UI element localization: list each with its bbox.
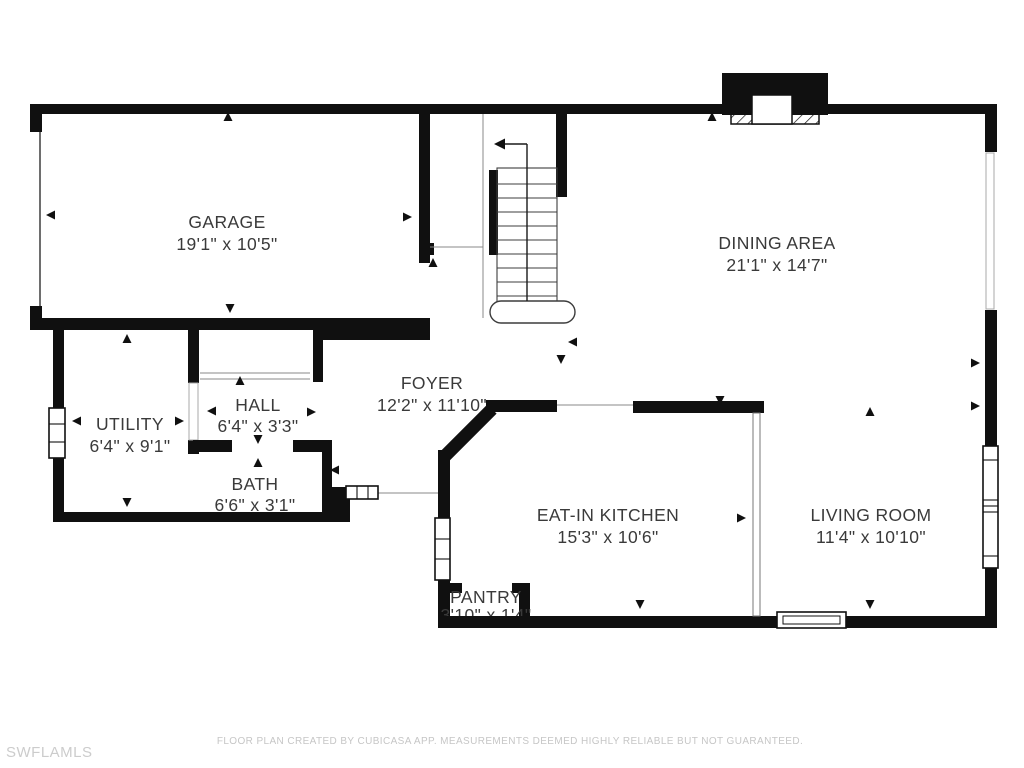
chimney-flue	[752, 95, 792, 124]
kitchen-window	[435, 518, 450, 580]
room-labels: GARAGE 19'1" x 10'5" DINING AREA 21'1" x…	[90, 212, 932, 625]
floorplan-page: GARAGE 19'1" x 10'5" DINING AREA 21'1" x…	[0, 0, 1024, 768]
dining-right-opening	[986, 153, 994, 309]
living-name: LIVING ROOM	[810, 505, 931, 525]
exterior-walls	[30, 104, 997, 628]
utility-window	[49, 408, 65, 458]
room-label-garage: GARAGE 19'1" x 10'5"	[176, 212, 277, 254]
room-label-hall: HALL 6'4" x 3'3"	[218, 395, 299, 436]
stairs-bottom-step	[490, 301, 575, 323]
pantry-name: PANTRY	[450, 587, 522, 607]
room-label-dining: DINING AREA 21'1" x 14'7"	[718, 233, 835, 275]
garage-name: GARAGE	[188, 212, 265, 232]
fireplace-chimney	[722, 73, 828, 124]
kitchen-dims: 15'3" x 10'6"	[557, 527, 658, 547]
room-label-utility: UTILITY 6'4" x 9'1"	[90, 414, 171, 456]
foyer-dims: 12'2" x 11'10"	[377, 395, 487, 415]
stairs-direction-arrow	[494, 139, 505, 150]
utility-name: UTILITY	[96, 414, 164, 434]
kitchen-living-divider	[753, 413, 760, 616]
utility-door-opening	[189, 383, 198, 440]
room-label-kitchen: EAT-IN KITCHEN 15'3" x 10'6"	[537, 505, 679, 547]
living-right-window	[983, 446, 998, 568]
bath-dims: 6'6" x 3'1"	[215, 495, 296, 515]
mls-watermark: SWFLAMLS	[6, 744, 93, 761]
bath-window	[346, 486, 378, 499]
hall-name: HALL	[235, 395, 280, 415]
floorplan-svg: GARAGE 19'1" x 10'5" DINING AREA 21'1" x…	[0, 0, 1024, 768]
dining-name: DINING AREA	[718, 233, 835, 253]
pantry-bottom-wall-overlay	[438, 616, 548, 628]
room-label-foyer: FOYER 12'2" x 11'10"	[377, 373, 487, 415]
room-label-living: LIVING ROOM 11'4" x 10'10"	[810, 505, 931, 547]
kitchen-name: EAT-IN KITCHEN	[537, 505, 679, 525]
dining-dims: 21'1" x 14'7"	[726, 255, 827, 275]
garage-dims: 19'1" x 10'5"	[176, 234, 277, 254]
utility-dims: 6'4" x 9'1"	[90, 436, 171, 456]
staircase	[426, 112, 575, 323]
living-bottom-window	[777, 612, 846, 628]
living-dims: 11'4" x 10'10"	[816, 527, 926, 547]
bath-name: BATH	[232, 474, 279, 494]
foyer-name: FOYER	[401, 373, 463, 393]
footer-disclaimer: FLOOR PLAN CREATED BY CUBICASA APP. MEAS…	[217, 736, 803, 747]
room-label-bath: BATH 6'6" x 3'1"	[215, 474, 296, 515]
hall-dims: 6'4" x 3'3"	[218, 416, 299, 436]
